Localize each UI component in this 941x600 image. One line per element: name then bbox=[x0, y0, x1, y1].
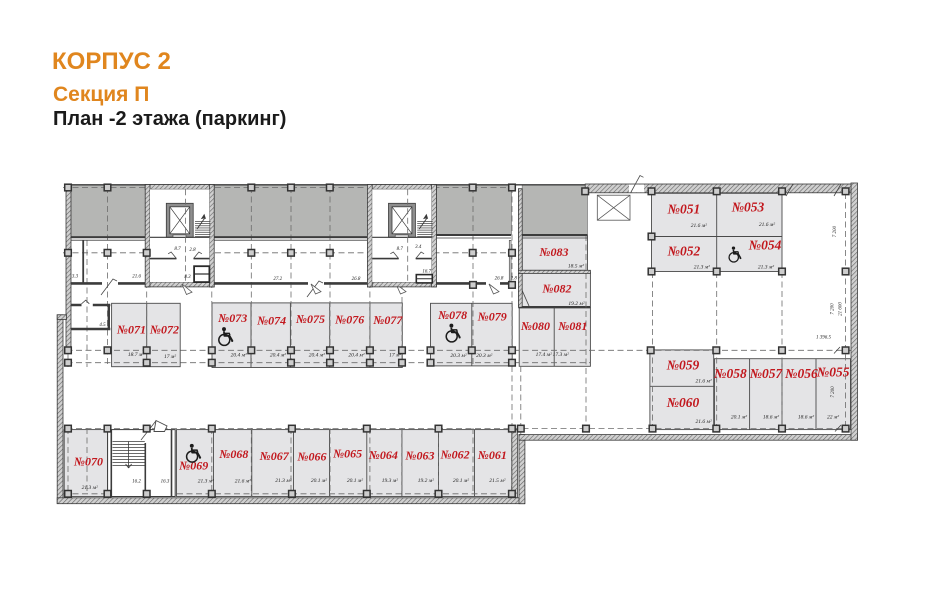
svg-text:2.8: 2.8 bbox=[511, 277, 518, 282]
svg-text:20.3 м²: 20.3 м² bbox=[476, 353, 493, 359]
svg-text:№077: №077 bbox=[372, 313, 403, 327]
svg-text:17.3 м²: 17.3 м² bbox=[553, 352, 570, 358]
svg-text:18.5 м²: 18.5 м² bbox=[568, 264, 585, 270]
svg-text:№055: №055 bbox=[816, 365, 850, 380]
svg-text:№070: №070 bbox=[73, 455, 103, 469]
svg-text:№064: №064 bbox=[368, 448, 398, 462]
svg-text:20.4 м²: 20.4 м² bbox=[270, 352, 287, 359]
svg-text:20.1 м²: 20.1 м² bbox=[453, 478, 470, 484]
svg-text:№066: №066 bbox=[297, 450, 327, 464]
svg-text:20.1 м²: 20.1 м² bbox=[311, 478, 328, 484]
svg-text:18.7 м²: 18.7 м² bbox=[128, 352, 145, 358]
svg-text:17.4 м²: 17.4 м² bbox=[536, 351, 553, 358]
svg-text:21.5 м²: 21.5 м² bbox=[489, 478, 506, 484]
svg-text:№059: №059 bbox=[666, 358, 700, 373]
svg-text:18.6 м²: 18.6 м² bbox=[798, 415, 815, 421]
svg-text:16.7: 16.7 bbox=[422, 270, 431, 275]
svg-text:20.1 м²: 20.1 м² bbox=[731, 415, 748, 421]
svg-text:8.3: 8.3 bbox=[184, 275, 191, 280]
svg-text:7 200: 7 200 bbox=[831, 303, 836, 315]
svg-text:№054: №054 bbox=[748, 238, 782, 253]
svg-text:№060: №060 bbox=[666, 395, 700, 410]
svg-text:21.3 м²: 21.3 м² bbox=[198, 479, 215, 485]
svg-text:3.4: 3.4 bbox=[415, 245, 422, 250]
svg-text:№062: №062 bbox=[440, 448, 470, 462]
svg-text:№083: №083 bbox=[539, 245, 569, 259]
svg-text:20.4 м²: 20.4 м² bbox=[348, 352, 365, 359]
svg-text:16.3: 16.3 bbox=[161, 480, 170, 485]
svg-text:18.6 м²: 18.6 м² bbox=[763, 415, 780, 421]
svg-text:3.3: 3.3 bbox=[72, 275, 79, 280]
svg-text:21 600: 21 600 bbox=[839, 302, 844, 316]
svg-text:17 м²: 17 м² bbox=[389, 353, 401, 359]
svg-text:17 м²: 17 м² bbox=[164, 354, 176, 360]
svg-text:8.7: 8.7 bbox=[397, 247, 404, 252]
svg-text:27.2: 27.2 bbox=[273, 277, 282, 282]
svg-text:№061: №061 bbox=[477, 448, 507, 462]
svg-text:Секция П: Секция П bbox=[53, 83, 149, 106]
svg-text:21.6 м²: 21.6 м² bbox=[235, 479, 252, 485]
svg-text:8.7: 8.7 bbox=[174, 247, 181, 252]
svg-text:4.5: 4.5 bbox=[99, 323, 106, 328]
svg-text:№075: №075 bbox=[295, 312, 325, 326]
svg-text:№052: №052 bbox=[667, 244, 701, 259]
svg-text:№082: №082 bbox=[542, 282, 572, 296]
svg-text:№071: №071 bbox=[116, 323, 146, 337]
svg-text:№078: №078 bbox=[437, 308, 467, 322]
svg-text:№081: №081 bbox=[557, 319, 587, 333]
svg-text:21.6 м²: 21.6 м² bbox=[759, 222, 776, 228]
svg-text:19.3 м²: 19.3 м² bbox=[382, 478, 399, 484]
svg-text:21.6 м²: 21.6 м² bbox=[696, 419, 713, 425]
svg-text:21.3 м²: 21.3 м² bbox=[694, 265, 711, 271]
svg-text:21.6 м²: 21.6 м² bbox=[691, 223, 708, 229]
svg-text:20.1 м²: 20.1 м² bbox=[347, 478, 364, 484]
svg-text:№069: №069 bbox=[178, 459, 208, 473]
svg-text:19.2 м²: 19.2 м² bbox=[568, 301, 585, 307]
svg-text:№080: №080 bbox=[520, 319, 550, 333]
svg-text:21.3 м²: 21.3 м² bbox=[82, 485, 99, 491]
svg-text:22 м²: 22 м² bbox=[827, 415, 839, 421]
svg-text:№051: №051 bbox=[667, 202, 701, 217]
svg-text:№065: №065 bbox=[332, 447, 362, 461]
svg-text:№063: №063 bbox=[405, 449, 435, 463]
svg-text:КОРПУС 2: КОРПУС 2 bbox=[52, 48, 171, 75]
svg-text:№072: №072 bbox=[149, 323, 179, 337]
svg-text:План -2 этажа (паркинг): План -2 этажа (паркинг) bbox=[53, 108, 286, 130]
svg-text:№079: №079 bbox=[477, 310, 507, 324]
svg-text:21.3 м²: 21.3 м² bbox=[758, 265, 775, 271]
svg-text:№067: №067 bbox=[259, 449, 290, 463]
svg-text:21.6: 21.6 bbox=[132, 275, 141, 280]
svg-text:26.8: 26.8 bbox=[352, 277, 361, 282]
svg-text:№076: №076 bbox=[334, 313, 364, 327]
svg-text:№056: №056 bbox=[784, 366, 818, 381]
svg-text:1 396.5: 1 396.5 bbox=[816, 336, 832, 341]
svg-text:21.6 м²: 21.6 м² bbox=[696, 379, 713, 385]
svg-text:№074: №074 bbox=[256, 314, 286, 328]
svg-text:7 200: 7 200 bbox=[833, 225, 838, 237]
svg-text:19.2 м²: 19.2 м² bbox=[418, 478, 435, 484]
svg-text:20.3 м²: 20.3 м² bbox=[450, 353, 467, 359]
svg-text:№057: №057 bbox=[749, 366, 784, 381]
svg-text:21.3 м²: 21.3 м² bbox=[275, 478, 292, 484]
svg-text:2.8: 2.8 bbox=[189, 248, 196, 253]
svg-text:20.4 м²: 20.4 м² bbox=[231, 352, 248, 359]
svg-text:№058: №058 bbox=[713, 366, 747, 381]
svg-text:№053: №053 bbox=[731, 200, 765, 215]
svg-text:16.2: 16.2 bbox=[132, 480, 141, 485]
svg-text:№068: №068 bbox=[218, 447, 248, 461]
svg-text:7 200: 7 200 bbox=[831, 386, 836, 398]
svg-text:№073: №073 bbox=[217, 311, 247, 325]
svg-text:20.4 м²: 20.4 м² bbox=[309, 352, 326, 359]
svg-text:26.8: 26.8 bbox=[495, 277, 504, 282]
